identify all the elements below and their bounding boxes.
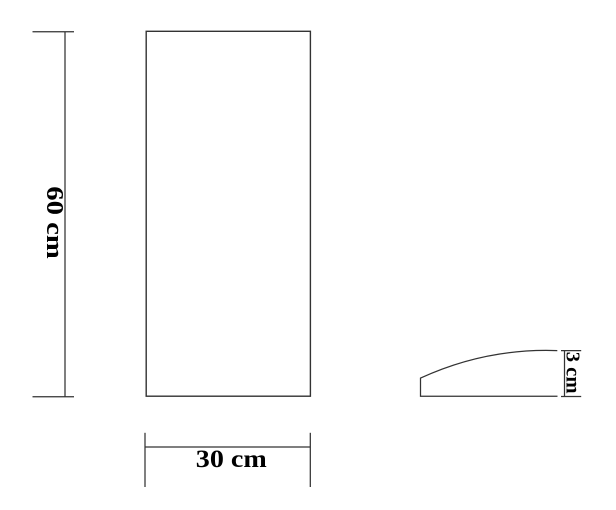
svg-text:30 cm: 30 cm — [196, 445, 267, 473]
svg-text:60 cm: 60 cm — [41, 186, 68, 259]
svg-text:3 cm: 3 cm — [562, 352, 584, 394]
